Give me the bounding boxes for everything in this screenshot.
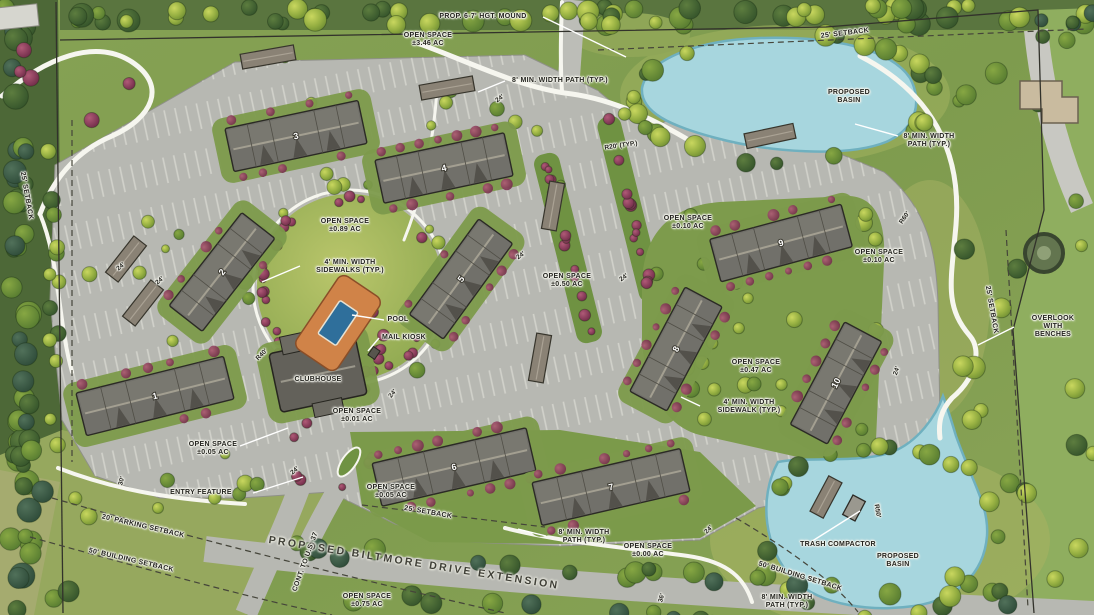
tree [618,108,631,121]
tree [120,15,133,28]
tree [532,125,543,136]
tree [772,479,789,496]
site-plan-canvas: 12345678910 [0,0,1094,615]
tree [162,245,170,253]
tree [954,239,974,259]
tree [1017,484,1036,503]
tree [308,539,328,559]
tree [133,266,146,279]
tree [1,277,22,298]
tree [750,570,765,585]
tree [304,8,327,31]
tree [962,0,975,12]
tree [387,16,406,35]
tree [13,371,34,392]
tree [50,240,65,255]
tree [856,423,868,435]
shrub [357,196,364,203]
shrub [123,78,135,90]
tree [800,595,815,610]
shrub [261,318,270,327]
shrub [417,232,428,243]
tree [344,591,364,611]
tree [402,586,422,606]
tree [20,543,41,564]
tree [705,573,723,591]
tree [642,59,664,81]
tree [733,323,744,334]
tree [642,562,656,576]
tree [43,301,58,316]
tree [602,16,621,35]
tree [638,121,652,135]
tree [980,492,1000,512]
shrub [378,329,390,341]
tree [427,121,436,130]
shrub [14,66,26,78]
tree [698,412,712,426]
tree [708,383,721,396]
tree [1076,240,1088,252]
tree [16,305,39,328]
tree [18,144,34,160]
tree [868,232,882,246]
tree [3,191,25,213]
tree [5,236,25,256]
tree [743,293,754,304]
tree [471,555,486,570]
tree [627,90,640,103]
tree [961,460,977,476]
tree [220,449,230,459]
tree [425,225,433,233]
shrub [571,265,579,273]
tree [956,85,976,105]
shrub [579,309,591,321]
tree [991,530,1005,544]
tree [999,596,1017,614]
tree [327,180,342,195]
shrub [339,484,346,491]
tree [1047,571,1064,588]
tree [562,565,577,580]
tree [1008,259,1027,278]
tree [8,600,26,615]
shrub [16,43,31,58]
shrub [335,198,344,207]
offsite-structure-nw [0,4,39,30]
tree [1036,30,1050,44]
shrub [622,189,632,199]
tree [857,443,871,457]
shrub [632,229,640,237]
tree [815,25,837,47]
shrub [290,433,299,442]
tree [871,438,888,455]
tree [734,0,757,23]
tree [580,13,597,30]
tree [522,595,541,614]
tree [925,67,942,84]
shrub [588,328,595,335]
tree [19,394,39,414]
shrub [385,362,393,370]
tree [3,84,28,109]
site-plan: 12345678910 [0,0,1094,615]
tree [364,539,385,560]
tree [1066,434,1087,455]
tree [330,548,349,567]
tree [168,2,186,20]
tree [680,46,695,61]
shrub [84,113,99,128]
tree [510,10,532,32]
tree [43,333,57,347]
tree [776,379,787,390]
tree [992,298,1012,318]
shrub [281,216,291,226]
tree [787,312,803,328]
shrub [636,248,643,255]
tree [45,413,57,425]
tree [18,414,34,430]
tree [919,444,940,465]
tree [268,14,284,30]
tree [916,114,933,131]
shrub [257,287,267,297]
tree [1059,32,1076,49]
tree [44,268,56,280]
tree [1035,14,1048,27]
tree [1069,194,1084,209]
tree [41,144,56,159]
tree [945,567,965,587]
tree [69,7,87,25]
tree [770,157,783,170]
tree [797,3,811,17]
tree [825,147,842,164]
tree [250,477,264,491]
tree [18,529,33,544]
shrub [614,155,624,165]
tree [409,362,425,378]
tree [432,236,445,249]
tree [21,440,41,460]
tree [420,13,440,33]
tree [679,0,701,19]
tree [490,101,505,116]
tree [69,492,82,505]
shrub [603,113,614,124]
tree [875,39,897,61]
tree [50,437,66,453]
tree [58,581,79,602]
tree [160,473,174,487]
tree [786,575,807,596]
tree [649,16,662,29]
tree [439,96,452,109]
tree [500,555,520,575]
tree [15,478,33,496]
tree [82,267,97,282]
tree [32,481,54,503]
tree [962,410,981,429]
shrub [545,166,552,173]
tree [153,503,164,514]
shrub [273,327,281,335]
shrub [577,291,587,301]
shrub [641,277,652,288]
tree [939,586,960,607]
tree [747,377,761,391]
tree [15,343,38,366]
tree [142,215,155,228]
tree [953,356,974,377]
tree [985,62,1007,84]
tree [320,167,333,180]
tree [737,153,756,172]
tree [684,209,698,223]
shrub [560,230,571,241]
tree [684,136,705,157]
tree [859,208,873,222]
tree [1069,539,1088,558]
shrub [404,351,413,360]
shrub [571,274,579,282]
tree [174,229,184,239]
tree [891,0,911,19]
existing-circular-feature-center [1037,246,1051,260]
tree [208,492,221,505]
tree [462,10,484,32]
tree [683,562,704,583]
tree [758,541,778,561]
tree [8,567,29,588]
tree [560,2,578,20]
shrub [302,418,312,428]
tree [625,0,643,18]
tree [1065,379,1085,399]
tree [363,4,380,21]
tree [865,0,880,14]
tree [879,583,901,605]
tree [1066,16,1079,29]
tree [943,456,959,472]
shrub [344,191,355,202]
tree [788,457,808,477]
tree [3,160,26,183]
tree [203,6,219,22]
tree [651,127,671,147]
tree [167,335,178,346]
tree [542,5,559,22]
tree [241,0,257,15]
tree [647,605,661,615]
